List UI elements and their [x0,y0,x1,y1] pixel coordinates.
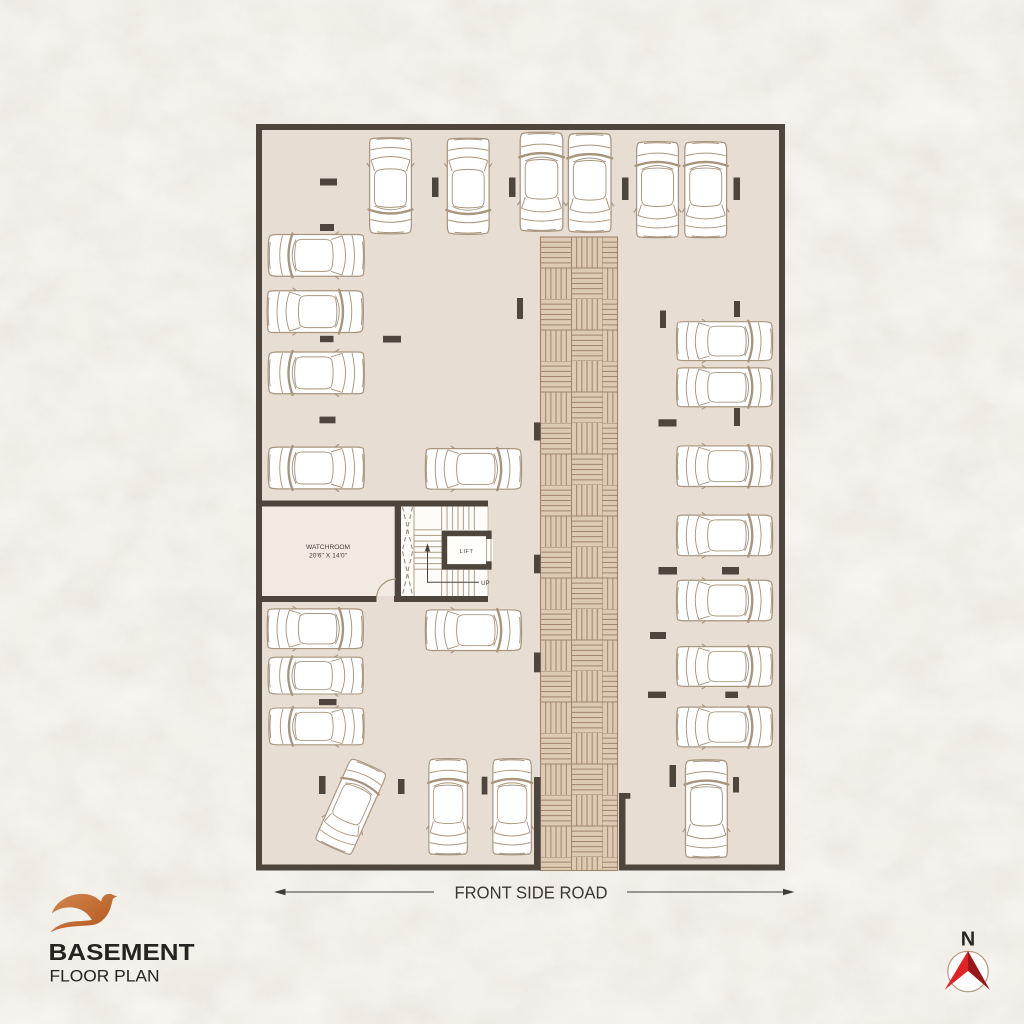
svg-text:LIFT: LIFT [460,549,474,555]
svg-text:20'6" X 14'0": 20'6" X 14'0" [309,553,347,560]
svg-text:FLOOR PLAN: FLOOR PLAN [50,968,160,986]
svg-text:FRONT SIDE ROAD: FRONT SIDE ROAD [455,883,608,903]
svg-text:UP: UP [481,580,490,587]
svg-text:N: N [961,929,975,951]
svg-text:BASEMENT: BASEMENT [49,939,196,965]
svg-text:WATCHROOM: WATCHROOM [306,544,350,551]
